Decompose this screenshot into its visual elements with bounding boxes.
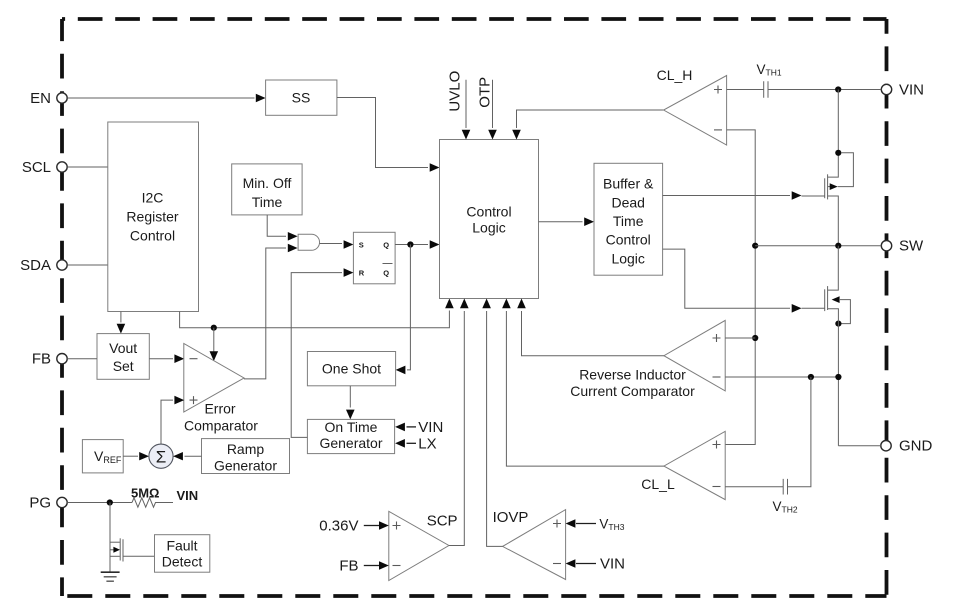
svg-text:GND: GND: [899, 438, 933, 455]
svg-text:SW: SW: [899, 238, 924, 255]
svg-text:Ramp: Ramp: [227, 441, 265, 457]
svg-text:VTH2: VTH2: [773, 499, 798, 515]
svg-text:CL_L: CL_L: [641, 476, 675, 492]
svg-text:Error: Error: [204, 401, 235, 417]
svg-text:VTH3: VTH3: [599, 517, 624, 533]
svg-text:FB: FB: [32, 351, 51, 368]
svg-text:5MΩ: 5MΩ: [131, 486, 159, 501]
svg-text:Control: Control: [130, 228, 175, 244]
svg-text:Q: Q: [383, 240, 389, 249]
svg-text:Fault: Fault: [166, 538, 197, 554]
svg-text:On Time: On Time: [325, 419, 378, 435]
svg-text:PG: PG: [29, 495, 51, 512]
svg-text:CL_H: CL_H: [657, 67, 693, 83]
svg-text:Time: Time: [252, 194, 283, 210]
svg-text:Reverse Inductor: Reverse Inductor: [579, 367, 686, 383]
svg-text:VIN: VIN: [177, 488, 199, 503]
svg-text:Control: Control: [466, 203, 511, 219]
svg-text:OTP: OTP: [476, 77, 493, 108]
svg-text:VIN: VIN: [899, 82, 924, 99]
svg-text:S: S: [359, 240, 364, 249]
svg-text:Σ: Σ: [156, 448, 167, 467]
svg-text:Logic: Logic: [611, 250, 644, 266]
svg-text:Time: Time: [613, 213, 644, 229]
svg-text:R: R: [359, 268, 365, 277]
svg-text:VTH1: VTH1: [757, 62, 782, 78]
svg-text:I2C: I2C: [142, 190, 164, 206]
svg-text:EN: EN: [30, 90, 51, 107]
svg-text:Generator: Generator: [319, 435, 382, 451]
svg-text:Detect: Detect: [162, 554, 203, 570]
svg-text:Dead: Dead: [611, 194, 644, 210]
svg-text:One Shot: One Shot: [322, 361, 381, 377]
svg-text:SCP: SCP: [427, 513, 458, 530]
svg-text:FB: FB: [339, 558, 358, 575]
svg-text:VIN: VIN: [600, 556, 625, 573]
svg-text:Generator: Generator: [214, 458, 277, 474]
svg-text:SDA: SDA: [20, 257, 51, 274]
svg-text:VIN: VIN: [418, 419, 443, 436]
svg-text:Set: Set: [113, 358, 134, 374]
svg-text:Comparator: Comparator: [184, 418, 258, 434]
svg-text:Q: Q: [383, 268, 389, 277]
svg-text:0.36V: 0.36V: [319, 518, 358, 535]
svg-text:Control: Control: [606, 232, 651, 248]
svg-text:IOVP: IOVP: [493, 509, 529, 526]
svg-text:Logic: Logic: [472, 219, 505, 235]
svg-text:LX: LX: [418, 435, 436, 452]
svg-text:UVLO: UVLO: [446, 71, 463, 112]
svg-text:SCL: SCL: [22, 159, 51, 176]
svg-text:Register: Register: [126, 209, 178, 225]
svg-text:Min. Off: Min. Off: [243, 175, 292, 191]
svg-text:SS: SS: [292, 90, 311, 106]
svg-text:Vout: Vout: [109, 340, 137, 356]
svg-text:Current Comparator: Current Comparator: [570, 383, 695, 399]
svg-text:Buffer &: Buffer &: [603, 176, 654, 192]
